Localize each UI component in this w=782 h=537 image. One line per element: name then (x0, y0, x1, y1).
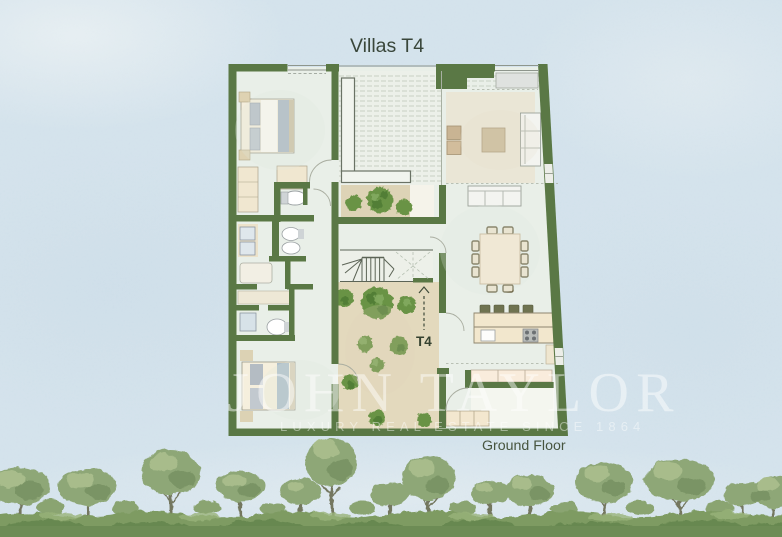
svg-text:Ground Floor: Ground Floor (482, 438, 566, 454)
svg-text:LUXURY REAL ESTATE SINCE 1864: LUXURY REAL ESTATE SINCE 1864 (280, 419, 645, 434)
svg-text:T4: T4 (416, 334, 432, 349)
svg-text:Villas T4: Villas T4 (350, 35, 424, 57)
svg-text:JOHN TAYLOR: JOHN TAYLOR (227, 362, 681, 424)
